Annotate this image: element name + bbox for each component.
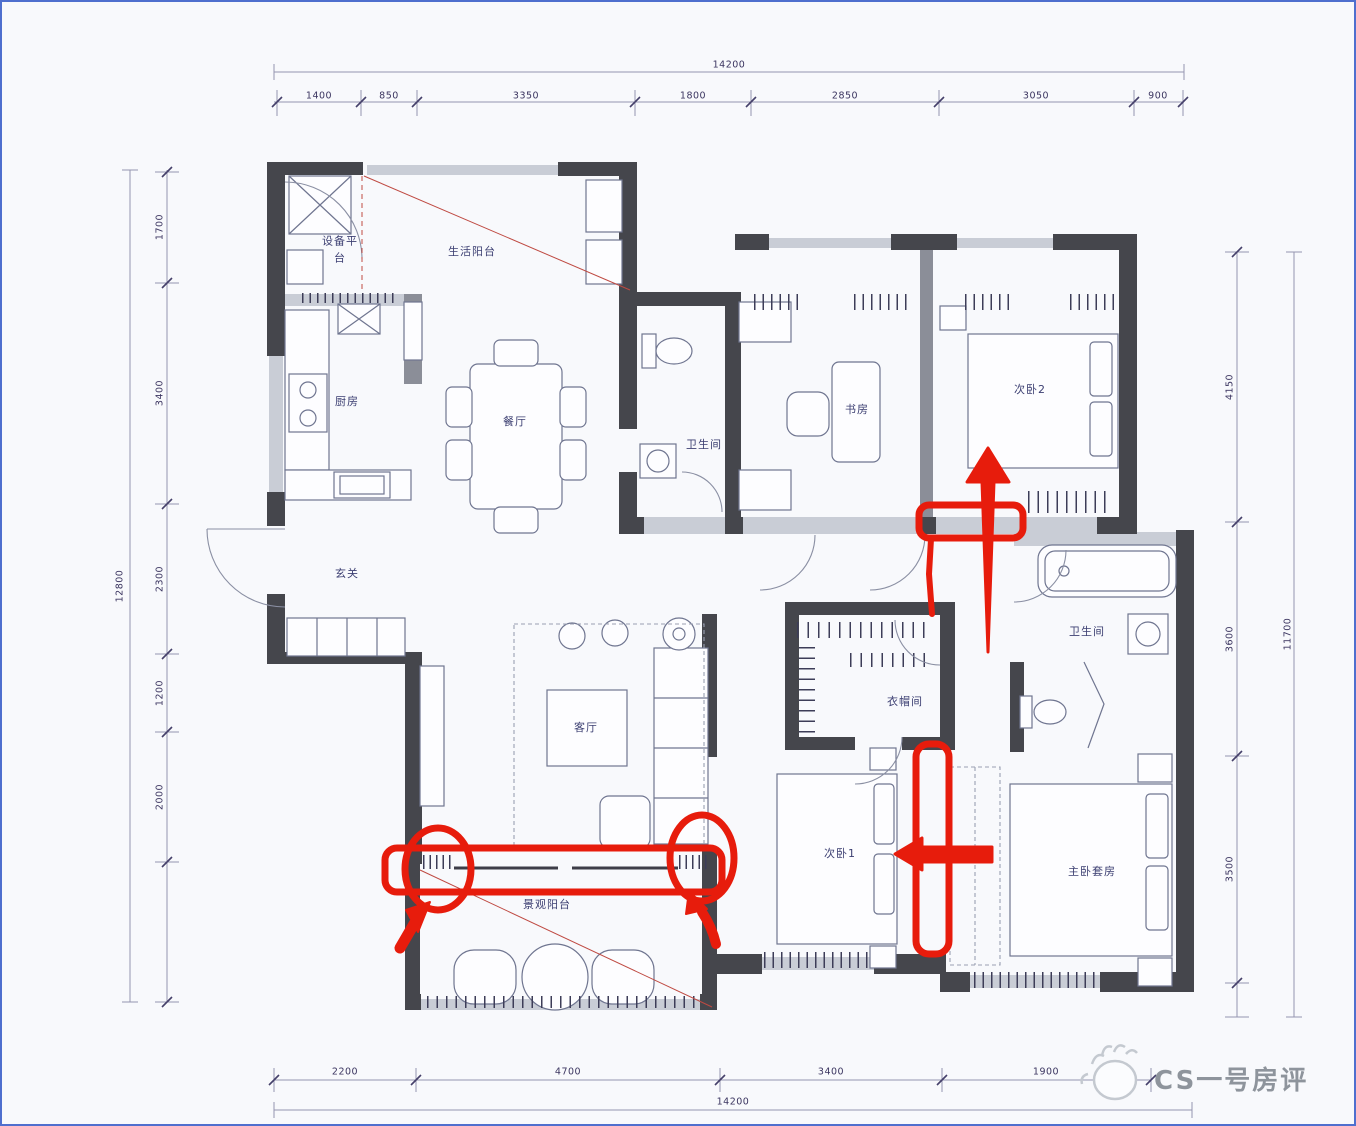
- dimension-label: 900: [1148, 91, 1168, 102]
- dimension-label: 3400: [155, 380, 166, 406]
- room-label-cloakroom: 衣帽间: [887, 694, 923, 711]
- room-label-kitchen: 厨房: [335, 394, 359, 411]
- dimension-label: 4150: [1225, 374, 1236, 400]
- room-label-view-balcony: 景观阳台: [523, 897, 571, 914]
- dimension-label: 2300: [155, 566, 166, 592]
- dimension-label: 2850: [832, 91, 858, 102]
- dimension-label: 3500: [1225, 856, 1236, 882]
- room-label-entry: 玄关: [335, 566, 359, 583]
- dimension-label: 1700: [155, 214, 166, 240]
- room-label-dining: 餐厅: [503, 414, 527, 431]
- red-connector-line: [929, 539, 932, 614]
- room-label-living: 客厅: [574, 720, 598, 737]
- dimension-label: 3400: [818, 1067, 844, 1078]
- dimension-label: 1400: [306, 91, 332, 102]
- room-label-bedroom2: 次卧2: [1014, 382, 1046, 399]
- dimension-label: 14200: [717, 1097, 750, 1108]
- dimension-label: 11700: [1283, 618, 1294, 651]
- floor-plan-drawing: [2, 2, 1356, 1126]
- dimension-label: 3350: [513, 91, 539, 102]
- room-label-study: 书房: [845, 402, 869, 419]
- room-label-bath-top: 卫生间: [686, 437, 722, 454]
- dimension-label: 3600: [1225, 626, 1236, 652]
- room-label-equipment-platform: 设备平台: [322, 234, 358, 267]
- watermark-text: CS一号房评: [1154, 1060, 1308, 1097]
- room-label-master-suite: 主卧套房: [1068, 864, 1116, 881]
- dimension-label: 12800: [115, 570, 126, 603]
- dimension-label: 850: [379, 91, 399, 102]
- dashed-outlines: [514, 624, 1000, 965]
- floorplan-canvas: 设备平台 生活阳台 厨房 餐厅 卫生间 书房 次卧2 玄关 客厅 衣帽间 卫生间…: [0, 0, 1356, 1126]
- dimension-label: 1900: [1033, 1067, 1059, 1078]
- dimension-label: 2000: [155, 784, 166, 810]
- dimension-label: 4700: [555, 1067, 581, 1078]
- dimension-label: 3050: [1023, 91, 1049, 102]
- dimension-label: 1800: [680, 91, 706, 102]
- long-up-arrow: [967, 448, 1009, 652]
- hand-logo-icon: [1082, 1045, 1137, 1099]
- room-label-bedroom1: 次卧1: [824, 846, 856, 863]
- dimension-label: 1200: [155, 680, 166, 706]
- dimension-label: 2200: [332, 1067, 358, 1078]
- room-label-life-balcony: 生活阳台: [448, 244, 496, 261]
- dimension-label: 14200: [713, 60, 746, 71]
- room-label-bath-master: 卫生间: [1069, 624, 1105, 641]
- big-left-arrow: [895, 838, 992, 870]
